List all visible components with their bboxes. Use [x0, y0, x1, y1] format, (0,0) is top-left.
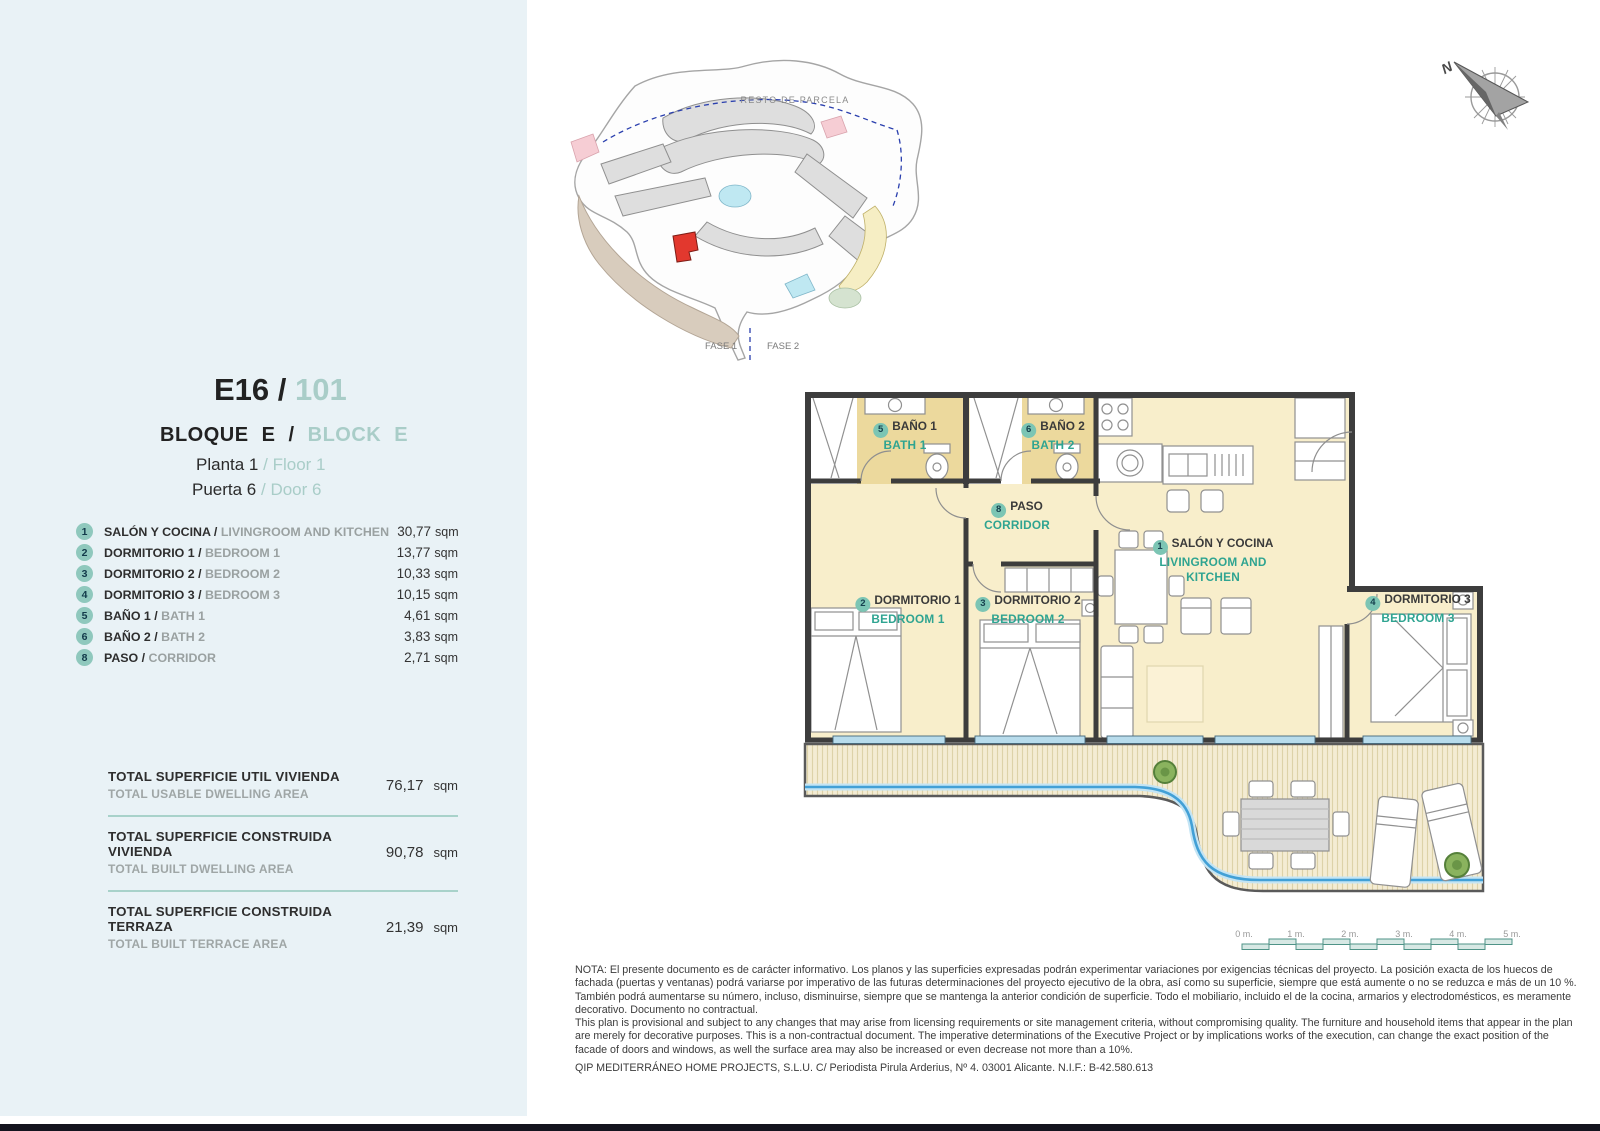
table-row: 3DORMITORIO 2 / BEDROOM 210,33sqm — [76, 563, 458, 584]
windows — [833, 736, 1471, 744]
svg-text:1 m.: 1 m. — [1287, 929, 1305, 939]
table-row: 6BAÑO 2 / BATH 23,83sqm — [76, 626, 458, 647]
room-area: 13,77 — [388, 545, 430, 560]
slash: / — [263, 455, 272, 474]
sun-lounger — [1370, 796, 1419, 888]
scale-bar: 0 m.1 m. 2 m.3 m. 4 m.5 m. — [1232, 928, 1532, 960]
door-line: Puerta 6 / Door 6 — [192, 480, 321, 500]
svg-text:2 m.: 2 m. — [1341, 929, 1359, 939]
scale-labels: 0 m.1 m. 2 m.3 m. 4 m.5 m. — [1235, 929, 1521, 939]
scale-segments — [1242, 939, 1512, 950]
plan-label-bath2: 6BAÑO 2 BATH 2 — [1021, 419, 1085, 453]
unit-number: 101 — [295, 372, 347, 407]
plan-label-bedroom3: 4DORMITORIO 3 BEDROOM 3 — [1365, 592, 1470, 626]
door-en: Door 6 — [270, 480, 321, 499]
plan-label-corridor: 8PASO CORRIDOR — [984, 499, 1050, 533]
svg-text:0 m.: 0 m. — [1235, 929, 1253, 939]
room-number-badge: 3 — [76, 565, 93, 582]
legal-notes: NOTA: El presente documento es de caráct… — [575, 964, 1583, 1075]
built-in-closet — [1005, 568, 1093, 592]
room-area: 3,83 — [388, 629, 430, 644]
room-area: 2,71 — [388, 650, 430, 665]
room-area: 10,33 — [388, 566, 430, 581]
plan-sheet: E16 / 101 BLOQUE E / BLOCK E Planta 1 / … — [0, 0, 1600, 1131]
footer-bar — [0, 1124, 1600, 1131]
block-en: BLOCK E — [308, 424, 409, 446]
room-number-badge: 5 — [76, 607, 93, 624]
total-built-row: TOTAL SUPERFICIE CONSTRUIDA VIVIENDATOTA… — [108, 815, 458, 890]
room-number-badge: 6 — [76, 628, 93, 645]
unit-title: E16 / 101 — [214, 372, 347, 408]
room-number-badge: 8 — [76, 649, 93, 666]
plan-label-livingroom: 1SALÓN Y COCINA LIVINGROOM AND KITCHEN — [1138, 536, 1288, 585]
total-built-value: 90,78 — [386, 844, 424, 861]
svg-text:5 m.: 5 m. — [1503, 929, 1521, 939]
room-area: 30,77 — [389, 524, 431, 539]
room-number-badge: 2 — [76, 544, 93, 561]
slash: / — [278, 372, 295, 407]
total-terrace-value: 21,39 — [386, 919, 424, 936]
svg-text:4 m.: 4 m. — [1449, 929, 1467, 939]
table-row: 8PASO / CORRIDOR2,71sqm — [76, 647, 458, 668]
totals-block: TOTAL SUPERFICIE UTIL VIVIENDATOTAL USAB… — [108, 757, 458, 965]
floor-en: Floor 1 — [273, 455, 326, 474]
company-line: QIP MEDITERRÁNEO HOME PROJECTS, S.L.U. C… — [575, 1062, 1583, 1075]
door-es: Puerta 6 — [192, 480, 256, 499]
table-row: 4DORMITORIO 3 / BEDROOM 310,15sqm — [76, 584, 458, 605]
floor-es: Planta 1 — [196, 455, 258, 474]
room-schedule: 1SALÓN Y COCINA / LIVINGROOM AND KITCHEN… — [76, 521, 458, 668]
plan-label-bedroom1: 2DORMITORIO 1 BEDROOM 1 — [855, 593, 960, 627]
total-usable-value: 76,17 — [386, 777, 424, 794]
fase1-label: FASE 1 — [705, 341, 737, 352]
plan-label-bath1: 5BAÑO 1 BATH 1 — [873, 419, 937, 453]
room-area: 10,15 — [388, 587, 430, 602]
room-number-badge: 1 — [76, 523, 93, 540]
resto-de-parcela-label: RESTO DE PARCELA — [741, 95, 850, 105]
unit-code: E16 — [214, 372, 269, 407]
table-row: 1SALÓN Y COCINA / LIVINGROOM AND KITCHEN… — [76, 521, 458, 542]
slash: / — [289, 424, 308, 446]
note-es: NOTA: El presente documento es de caráct… — [575, 964, 1583, 1017]
room-area: 4,61 — [388, 608, 430, 623]
svg-text:3 m.: 3 m. — [1395, 929, 1413, 939]
plan-label-bedroom2: 3DORMITORIO 2 BEDROOM 2 — [975, 593, 1080, 627]
north-arrow-icon: N — [1438, 50, 1538, 138]
block-es: BLOQUE E — [160, 424, 275, 446]
table-row: 2DORMITORIO 1 / BEDROOM 113,77sqm — [76, 542, 458, 563]
floor-line: Planta 1 / Floor 1 — [196, 455, 326, 475]
note-en: This plan is provisional and subject to … — [575, 1017, 1583, 1057]
block-title: BLOQUE E / BLOCK E — [160, 424, 408, 447]
total-usable-row: TOTAL SUPERFICIE UTIL VIVIENDATOTAL USAB… — [108, 757, 458, 815]
fase2-label: FASE 2 — [767, 341, 799, 352]
north-label: N — [1438, 58, 1455, 77]
table-row: 5BAÑO 1 / BATH 14,61sqm — [76, 605, 458, 626]
total-terrace-row: TOTAL SUPERFICIE CONSTRUIDA TERRAZATOTAL… — [108, 890, 458, 965]
site-plan: RESTO DE PARCELA FASE 1 FASE 2 — [545, 46, 945, 364]
room-number-badge: 4 — [76, 586, 93, 603]
